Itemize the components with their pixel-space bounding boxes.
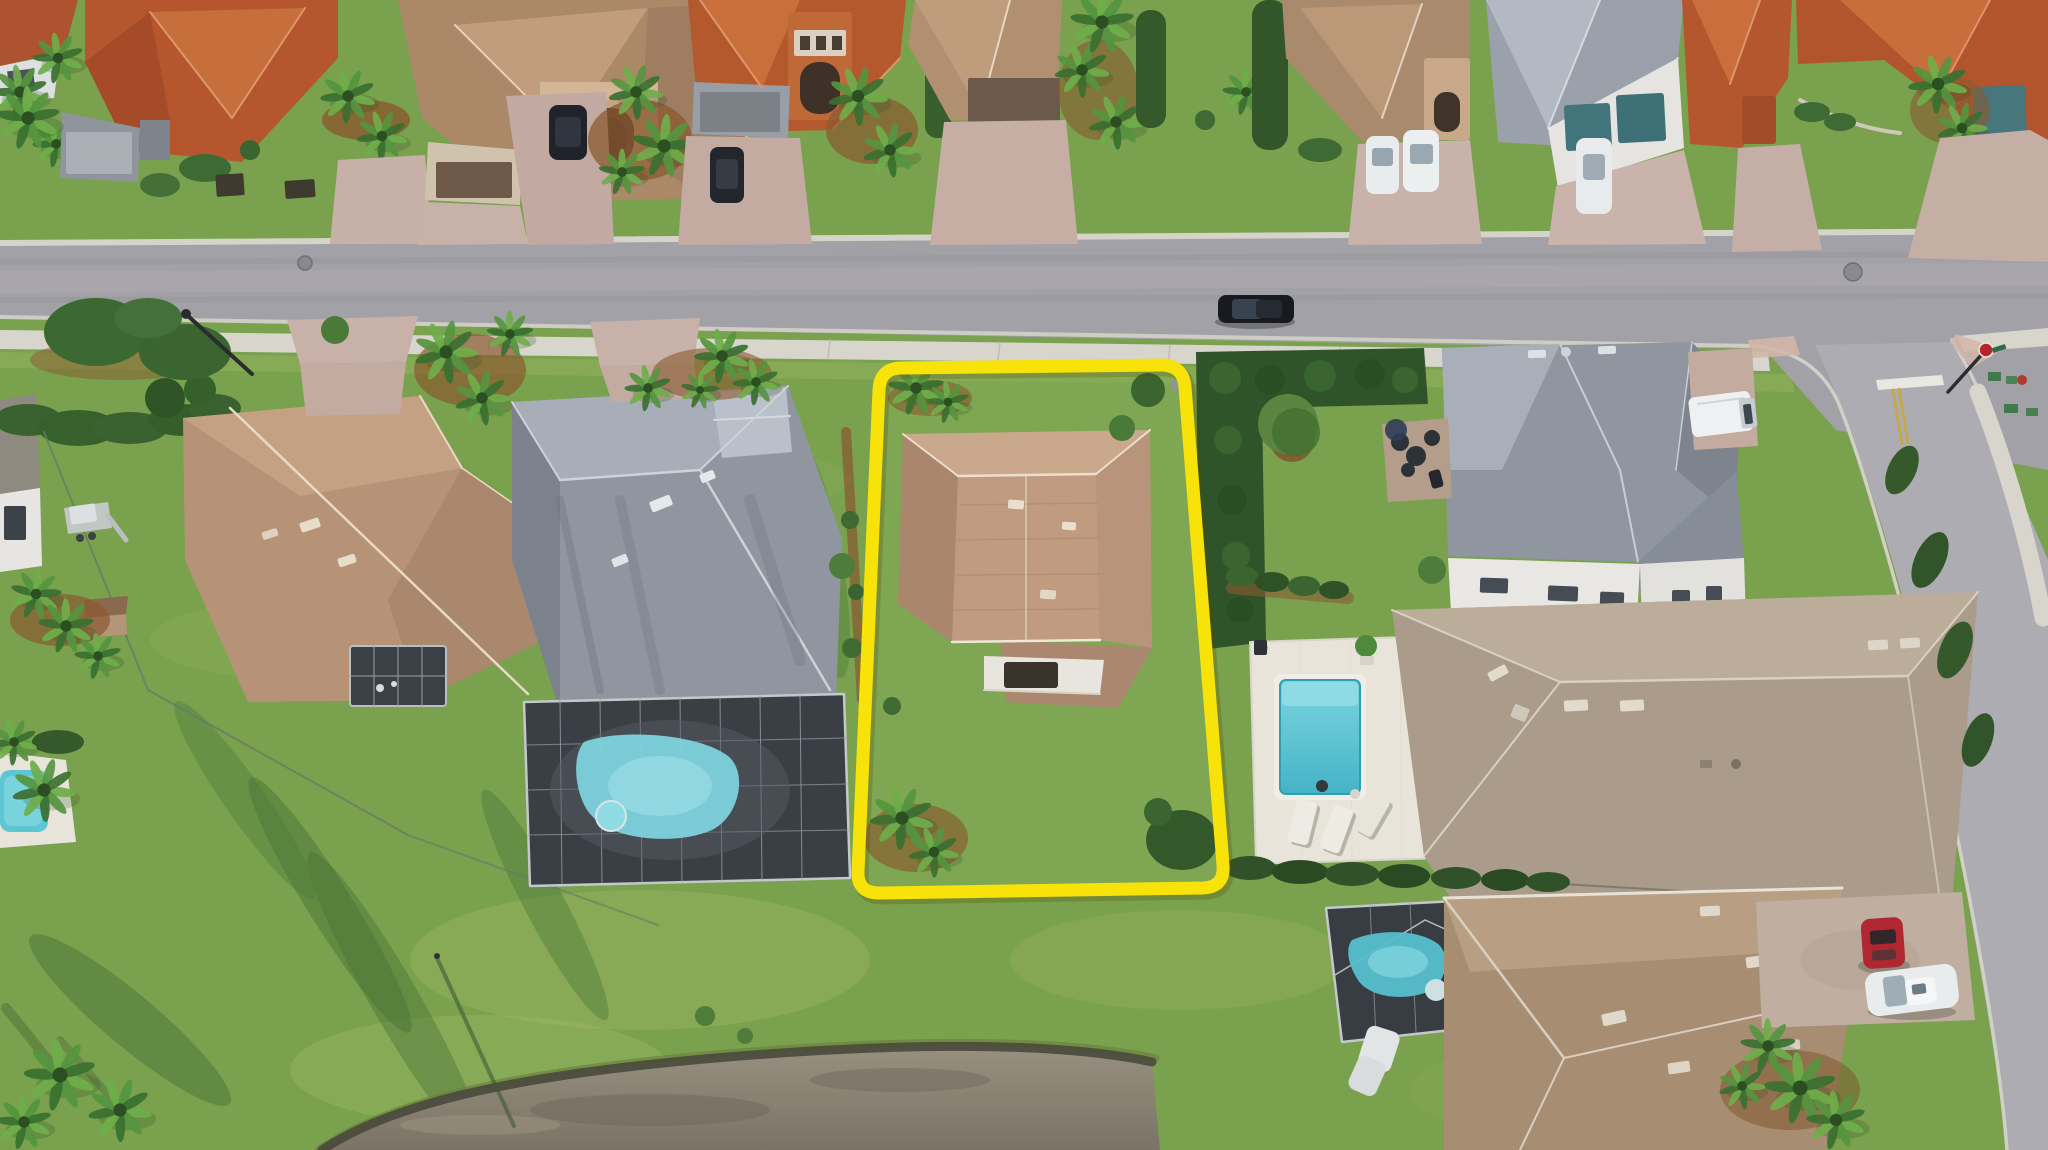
palm-crown xyxy=(895,811,908,824)
roof-vent xyxy=(1528,350,1546,359)
palm-crown xyxy=(60,620,71,631)
palm-crown xyxy=(53,1068,68,1083)
yard-tree-shade xyxy=(1272,408,1320,456)
palm-crown xyxy=(1095,15,1108,28)
palm-crown xyxy=(53,53,64,64)
corner-bush-small xyxy=(1144,798,1172,826)
fence-hedge xyxy=(1272,860,1328,884)
palm-crown xyxy=(377,131,388,142)
shrub xyxy=(883,697,901,715)
planter-pot xyxy=(1360,656,1374,665)
fence-hedge xyxy=(1325,862,1379,886)
patio-furniture xyxy=(1401,463,1415,477)
roof-vent xyxy=(1598,346,1616,355)
red-car-glass xyxy=(1870,929,1897,945)
shrub xyxy=(841,511,859,529)
hedge-column xyxy=(1252,0,1288,150)
palm-crown xyxy=(9,737,19,747)
aerial-photo xyxy=(0,0,2048,1150)
fence-hedge xyxy=(1481,869,1529,891)
utility-marker xyxy=(2017,375,2027,385)
palm-crown xyxy=(1737,1081,1747,1091)
hedge-texture xyxy=(1209,362,1241,394)
caged-spa xyxy=(1425,979,1447,1001)
palm-crown xyxy=(342,90,353,101)
garden-bush xyxy=(1226,566,1258,586)
lawn-drain-grate xyxy=(284,179,315,199)
side-table xyxy=(1350,789,1360,799)
houseA-drive-apron xyxy=(287,316,418,364)
palm-crown xyxy=(1110,116,1121,127)
white-suv-glass xyxy=(1583,154,1605,180)
pond-ripple xyxy=(810,1068,990,1092)
patio-umbrella xyxy=(1385,419,1407,441)
house3-tower-slot xyxy=(800,36,810,50)
roof-vent xyxy=(1040,589,1057,599)
hedge-texture xyxy=(1222,542,1250,570)
houseA-driveway xyxy=(300,362,406,416)
subject-property xyxy=(860,360,1220,890)
fence-hedge xyxy=(1431,867,1481,889)
palm-crown xyxy=(1762,1040,1773,1051)
hedge-column xyxy=(1136,10,1166,128)
shrub xyxy=(140,173,180,197)
dry-patch xyxy=(410,890,870,1030)
red-car-rear-glass xyxy=(1872,949,1897,961)
utility-box xyxy=(1988,372,2001,381)
roof-vent-dot xyxy=(1731,759,1741,769)
house3-tower-slot xyxy=(816,36,826,50)
palm-crown xyxy=(113,1103,126,1116)
palm-crown xyxy=(852,90,864,102)
house4-driveway xyxy=(930,120,1078,245)
stop-sign xyxy=(1979,343,1993,357)
black-car-roof xyxy=(555,117,581,147)
palm-crown xyxy=(1957,123,1968,134)
caged-pool-highlight xyxy=(1368,946,1428,978)
hedge-texture xyxy=(1355,359,1385,389)
palm-crown xyxy=(37,783,50,796)
pool-toy xyxy=(1316,780,1328,792)
house1-entry xyxy=(140,120,170,160)
hedge-texture xyxy=(1255,365,1285,395)
hedge-texture xyxy=(1214,426,1242,454)
pond-ripple xyxy=(400,1115,560,1135)
utility-box xyxy=(2004,404,2018,413)
hedge-texture xyxy=(1304,360,1336,392)
aerial-photo-stage xyxy=(0,0,2048,1150)
house1-driveway xyxy=(330,155,432,244)
hedge-texture xyxy=(1392,367,1418,393)
house3-tower-slot xyxy=(832,36,842,50)
palm-crown xyxy=(476,392,487,403)
palm-crown xyxy=(93,651,103,661)
patio-furniture xyxy=(1406,446,1426,466)
shrub xyxy=(240,140,260,160)
roof-vent-dot xyxy=(1561,347,1571,357)
palm-crown xyxy=(630,86,641,97)
fence-hedge xyxy=(1526,872,1570,892)
shrub xyxy=(114,298,182,338)
window xyxy=(1480,578,1509,594)
patio-furniture xyxy=(391,681,397,687)
shrub xyxy=(848,584,864,600)
tire-mark xyxy=(0,296,2048,300)
lamp-head xyxy=(181,309,191,319)
left-partial-window xyxy=(4,506,26,540)
roof-vent xyxy=(1700,905,1720,916)
palm-crown xyxy=(31,589,42,600)
teal-garage-door xyxy=(1616,93,1666,143)
palm-crown xyxy=(617,167,627,177)
white-car-windshield xyxy=(1882,975,1907,1007)
young-tree xyxy=(321,316,349,344)
palm-crown xyxy=(21,111,34,124)
lawn-drain-grate xyxy=(215,173,244,197)
palm-crown xyxy=(643,383,653,393)
yard-tree xyxy=(1418,556,1446,584)
deck-grill xyxy=(1254,640,1267,655)
house2-driveway xyxy=(418,202,528,245)
pond-ripple xyxy=(530,1094,770,1126)
subject-lanai-opening xyxy=(1004,662,1058,688)
palm-crown xyxy=(51,139,61,149)
young-tree xyxy=(1109,415,1135,441)
field-shrub xyxy=(737,1028,753,1044)
house5-arch xyxy=(1434,92,1460,132)
roof-vent xyxy=(1564,699,1589,711)
house3-garage-door xyxy=(700,92,780,132)
house1-garage-door xyxy=(66,132,132,174)
garden-bush xyxy=(1319,581,1349,599)
palm-crown xyxy=(884,144,895,155)
palm-crown xyxy=(944,398,953,407)
manhole xyxy=(298,256,312,270)
roof-vent xyxy=(1062,522,1077,531)
manhole xyxy=(1844,263,1862,281)
roof-box xyxy=(1700,760,1712,769)
swing-seat xyxy=(76,534,84,542)
palm-crown xyxy=(910,382,921,393)
roof-vent xyxy=(1008,499,1025,509)
dry-patch xyxy=(1010,910,1350,1010)
palm-crown xyxy=(505,329,515,339)
patio-furniture xyxy=(1424,430,1440,446)
utility-box xyxy=(2026,408,2038,416)
suv-roof xyxy=(1256,300,1282,318)
dark-car-roof xyxy=(716,159,738,189)
playset-canopy xyxy=(69,503,97,524)
window xyxy=(1548,585,1579,601)
roof-vent xyxy=(1900,637,1920,648)
shrub xyxy=(1824,113,1856,131)
palm-crown xyxy=(751,377,761,387)
young-tree xyxy=(829,553,855,579)
roof-tile-line xyxy=(954,609,1100,610)
yard-tree xyxy=(145,378,185,418)
field-shrub xyxy=(695,1006,715,1026)
palm-crown xyxy=(696,386,704,394)
hedge-texture xyxy=(1217,485,1247,515)
utility-box xyxy=(2006,376,2017,384)
trimmed-bush xyxy=(1131,373,1165,407)
spa xyxy=(596,801,626,831)
shrub xyxy=(842,638,862,658)
pool-steps xyxy=(1282,682,1358,706)
shrub xyxy=(1195,110,1215,130)
roof-tile-line xyxy=(956,574,1099,575)
house3-arch xyxy=(800,62,840,114)
palm-crown xyxy=(1793,1081,1808,1096)
palm-crown xyxy=(1932,78,1944,90)
palm-crown xyxy=(1241,87,1251,97)
palm-crown xyxy=(1830,1114,1842,1126)
roof-vent xyxy=(1620,699,1645,711)
house7-entry xyxy=(1742,96,1776,144)
shrub xyxy=(1794,102,1830,122)
house4-garage-door xyxy=(968,78,1060,122)
potted-plant xyxy=(1355,635,1377,657)
palm-crown xyxy=(18,1116,29,1127)
garden-bush xyxy=(1255,572,1289,592)
fence-hedge xyxy=(1378,864,1430,888)
palm-crown xyxy=(716,350,727,361)
palm-crown xyxy=(657,139,670,152)
white-car-glass xyxy=(1410,144,1433,164)
white-car-glass xyxy=(1372,148,1393,166)
road-wear-band xyxy=(0,274,2048,282)
garden-bush xyxy=(1288,576,1320,596)
house3-driveway xyxy=(678,136,812,245)
palm-crown xyxy=(929,847,940,858)
roof-vent xyxy=(1868,639,1888,650)
house2-garage-door xyxy=(436,162,512,198)
swing-seat xyxy=(88,532,96,540)
palm-crown xyxy=(439,345,452,358)
white-car-sunroof xyxy=(1911,983,1926,995)
patio-furniture xyxy=(376,684,384,692)
hedge-texture xyxy=(1227,597,1253,623)
shrub xyxy=(1298,138,1342,162)
lamp-base xyxy=(434,953,440,959)
palm-crown xyxy=(1076,64,1087,75)
